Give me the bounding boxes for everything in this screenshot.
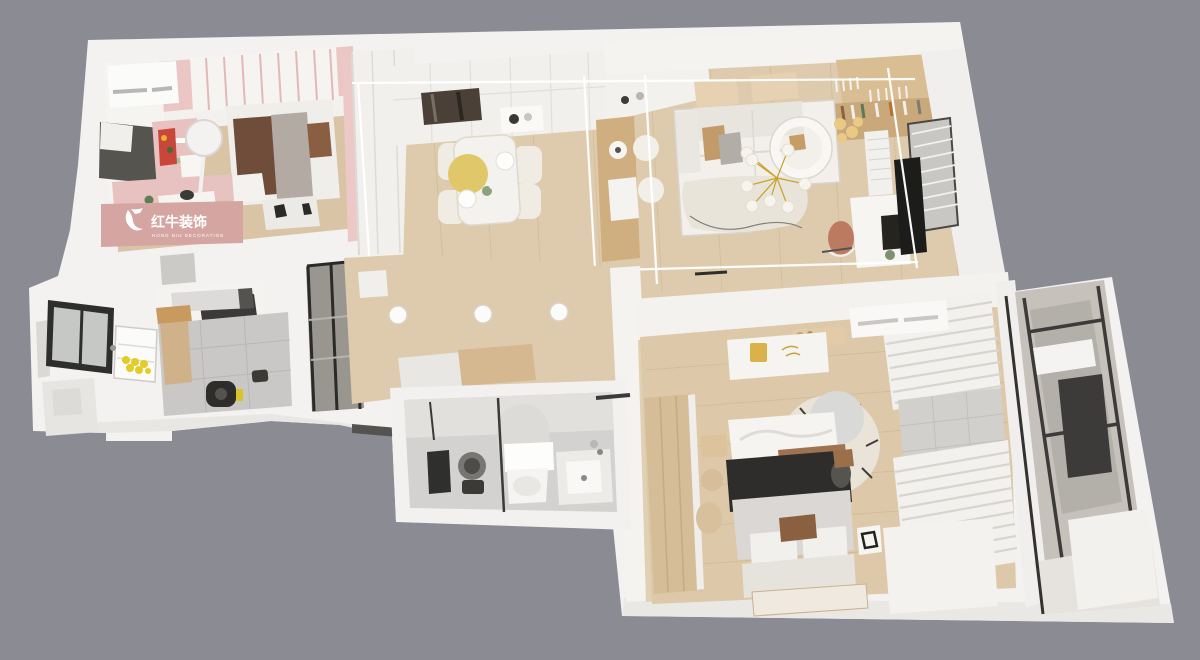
- svg-text:HONG NIU DECORATION: HONG NIU DECORATION: [152, 233, 224, 238]
- svg-text:红牛装饰: 红牛装饰: [151, 214, 207, 230]
